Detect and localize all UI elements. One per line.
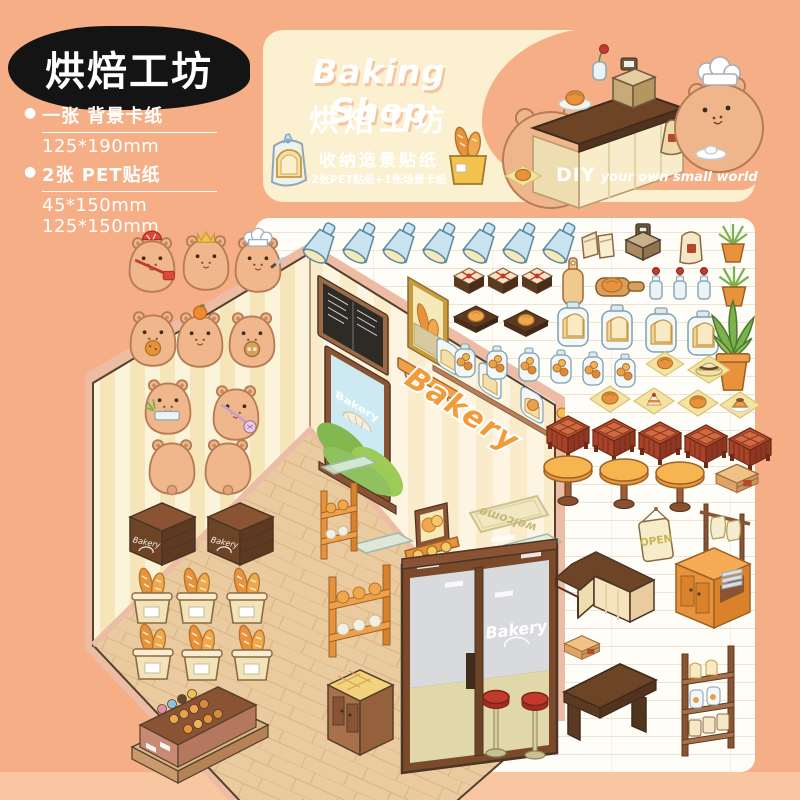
sticker-cookie-jar (452, 342, 478, 380)
sticker-spotlight (502, 220, 542, 268)
sticker-cookie-jar (484, 344, 510, 382)
sticker-bread-jar (554, 300, 592, 350)
sticker-napkin-bun (588, 384, 632, 414)
chef-hat-icon (698, 57, 740, 85)
chef-capybara (675, 57, 763, 172)
sticker-crate (714, 462, 760, 496)
sticker-gift-pastry (452, 264, 486, 298)
sticker-gift-pastry (486, 264, 520, 298)
sticker-cash-register (620, 220, 666, 264)
spec-item: ● 一张 背景卡纸 125*190mm (24, 102, 256, 157)
capybara-sticker-back (144, 432, 200, 496)
sticker-flower-vase (646, 266, 666, 304)
bullet-icon: ● (24, 164, 36, 180)
sticker-paper-bag-label (676, 226, 706, 268)
sticker-table-round (540, 456, 596, 512)
cash-register (613, 58, 655, 108)
sticker-gift-pastry (520, 264, 554, 298)
banner-note: 2张PET贴纸+1张场景卡纸 (290, 171, 468, 187)
sticker-napkin-cake (632, 386, 676, 416)
banner-subtitle: 收纳造景贴纸 (296, 146, 462, 171)
counter (533, 92, 683, 208)
sticker-spotlight (462, 220, 502, 268)
checkered-cabinet (328, 670, 393, 755)
sticker-board-bun (594, 268, 648, 302)
sticker-bun-tray (452, 304, 500, 336)
sticker-napkin-pudding (718, 390, 762, 420)
sticker-spotlight (382, 220, 422, 268)
sticker-stool-red (544, 414, 592, 460)
sticker-plant-grass (712, 218, 754, 266)
spec-item: ● 2张 PET贴纸 45*150mm 125*150mm (24, 161, 256, 237)
sticker-spotlight (422, 220, 462, 268)
tagline-text: your own small world (601, 170, 758, 185)
capybara-sticker-pretzel (224, 305, 280, 369)
sticker-spotlight (302, 220, 342, 268)
bakery-room-illustration: Bakery Bakery (85, 215, 565, 800)
sticker-bread-shelf (676, 644, 740, 760)
banner-title-cn: 烘焙工坊 (283, 96, 475, 140)
bakery-crate: Bakery (208, 503, 273, 565)
capybara-sticker-back (200, 432, 256, 496)
sticker-cookie-jar (516, 346, 542, 384)
sticker-spotlight (342, 220, 382, 268)
badge-label: 烘焙工坊 (45, 39, 213, 97)
sticker-stool-red (590, 417, 638, 463)
bullet-icon: ● (24, 105, 36, 121)
bakery-crate: Bakery (130, 503, 195, 565)
sticker-cookie-jar (580, 350, 606, 388)
sticker-napkin-hat (686, 354, 732, 384)
spec-label: 2张 PET贴纸 (42, 161, 217, 192)
specs-list: ● 一张 背景卡纸 125*190mm ● 2张 PET贴纸 45*150mm … (24, 102, 256, 241)
sticker-bun-tray (502, 308, 550, 340)
sticker-counter-L (550, 536, 660, 642)
page: { "colors": { "background": "#F5AE85", "… (0, 0, 800, 800)
capybara-sticker-orange-hat (172, 305, 228, 369)
banner-tagline: DIY your own small world (556, 164, 742, 186)
sticker-apron-cabinet (670, 500, 756, 634)
spec-label: 一张 背景卡纸 (42, 102, 217, 133)
sticker-bench (558, 648, 662, 752)
sticker-bread-jar (598, 303, 636, 353)
pastry-tray (559, 91, 591, 110)
title-badge: 烘焙工坊 (8, 26, 250, 110)
capybara-sticker-tray-greens (140, 372, 196, 436)
diy-label: DIY (556, 164, 596, 186)
flower-vase (593, 45, 609, 81)
sticker-napkin-bun (644, 350, 686, 378)
capybara-sticker-red-cap-satchel (124, 230, 180, 294)
capybara-sticker-chef-hat-knife (230, 230, 286, 294)
sticker-flower-vase (670, 266, 690, 304)
sticker-cookie-jar (548, 348, 574, 386)
capybara-sticker-gold-crown (178, 228, 234, 292)
sticker-bread-jar (642, 306, 680, 356)
spec-size: 125*190mm (42, 136, 256, 157)
sticker-napkin-bun (676, 388, 720, 418)
